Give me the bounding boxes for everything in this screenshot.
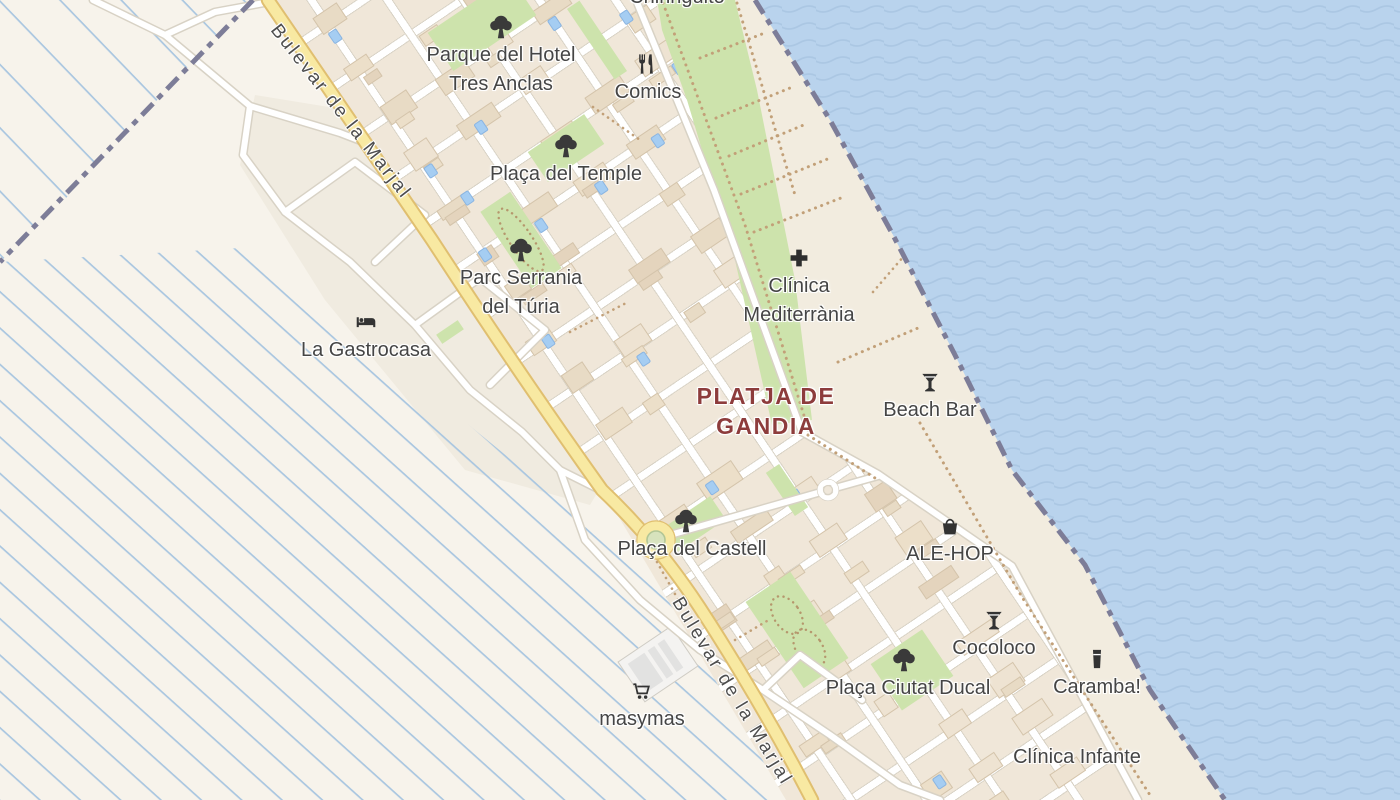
poi-label: Plaça del Castell bbox=[618, 535, 767, 564]
bed-icon bbox=[355, 311, 378, 334]
poi-label: masymas bbox=[599, 705, 685, 734]
poi-label: Chiringuito bbox=[629, 0, 725, 12]
beer-glass-icon bbox=[1086, 648, 1109, 671]
poi-label: Comics bbox=[615, 78, 682, 107]
poi-label: Beach Bar bbox=[883, 396, 976, 425]
street-label-bulevar-de-la-marjal-north: Bulevar de la Marjal bbox=[265, 20, 415, 204]
poi-label: Clínica Infante bbox=[1013, 743, 1141, 772]
poi-label: Plaça del Temple bbox=[490, 160, 642, 189]
street-label-bulevar-de-la-marjal-south: Bulevar de la Marjal bbox=[667, 593, 797, 789]
cocktail-icon bbox=[983, 609, 1006, 632]
tree-icon bbox=[488, 14, 515, 41]
map-canvas[interactable]: ChiringuitoParque del HotelTres AnclasCo… bbox=[0, 0, 1400, 800]
tree-icon bbox=[508, 237, 535, 264]
poi-label: PLATJA DEGANDIA bbox=[697, 381, 836, 441]
poi-label: ALE-HOP bbox=[906, 540, 994, 569]
basket-icon bbox=[939, 515, 962, 538]
poi-label: Cocoloco bbox=[952, 634, 1035, 663]
poi-label: Parc Serraniadel Túria bbox=[460, 264, 582, 322]
cross-icon bbox=[788, 247, 811, 270]
poi-label: ClínicaMediterrània bbox=[743, 272, 854, 330]
cart-icon bbox=[631, 680, 654, 703]
cocktail-icon bbox=[919, 371, 942, 394]
tree-icon bbox=[673, 508, 700, 535]
poi-label: Plaça Ciutat Ducal bbox=[826, 674, 991, 703]
restaurant-icon bbox=[637, 53, 660, 76]
tree-icon bbox=[553, 133, 580, 160]
poi-label: Parque del HotelTres Anclas bbox=[427, 41, 576, 99]
poi-label: La Gastrocasa bbox=[301, 336, 431, 365]
tree-icon bbox=[891, 647, 918, 674]
label-layer: ChiringuitoParque del HotelTres AnclasCo… bbox=[0, 0, 1400, 800]
poi-label: Caramba! bbox=[1053, 673, 1141, 702]
